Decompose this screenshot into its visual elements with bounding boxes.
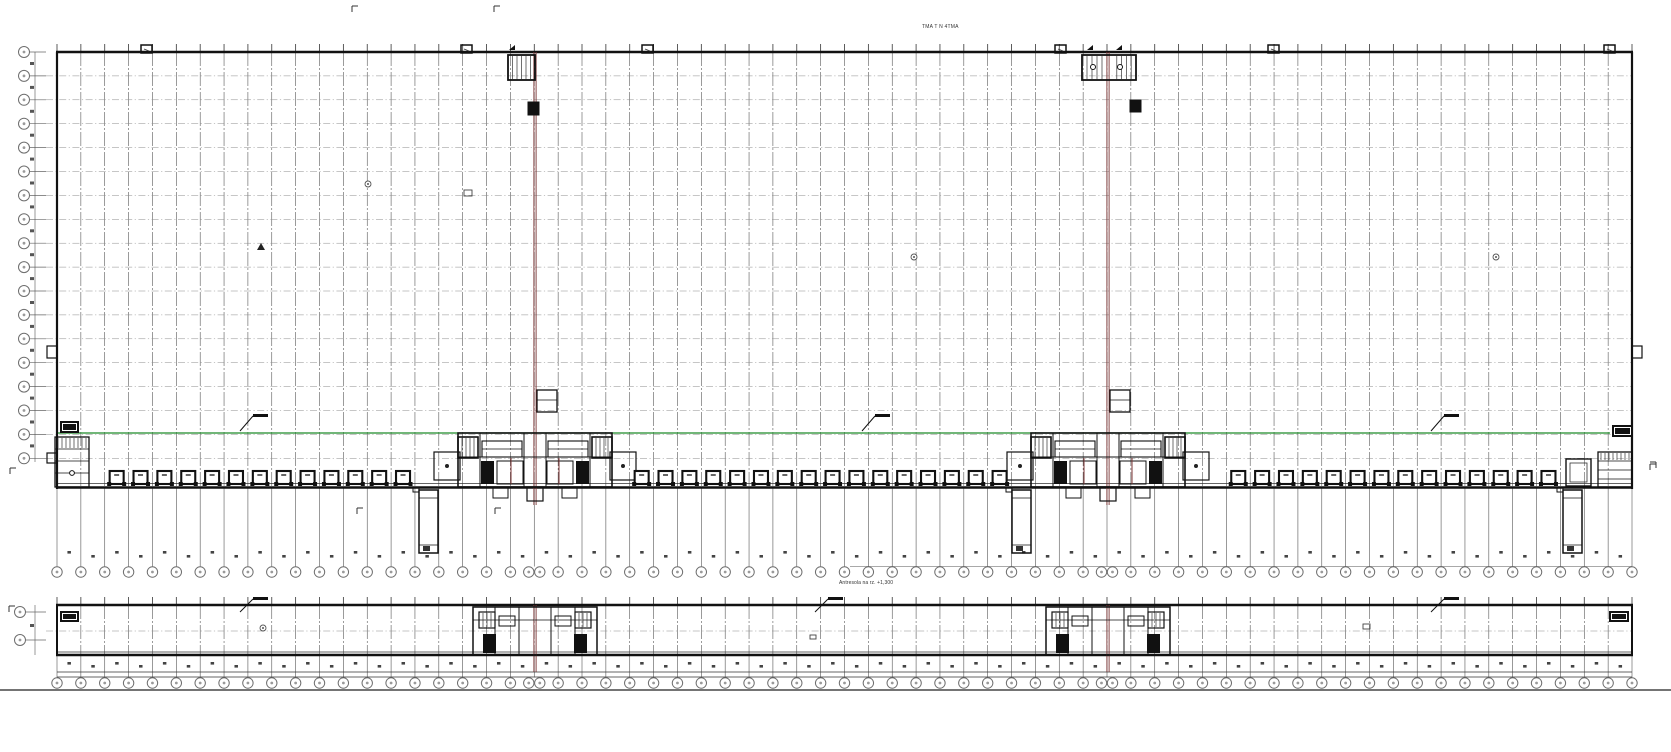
plan-svg xyxy=(0,0,1671,752)
drawing-title-note: TMA T N 4TMA xyxy=(922,24,959,30)
mezzanine-level-note: Antresola na rz. +1,300 xyxy=(839,580,893,586)
floor-plan-drawing: TMA T N 4TMA Antresola na rz. +1,300 xyxy=(0,0,1671,752)
plan-canvas xyxy=(0,0,1671,752)
